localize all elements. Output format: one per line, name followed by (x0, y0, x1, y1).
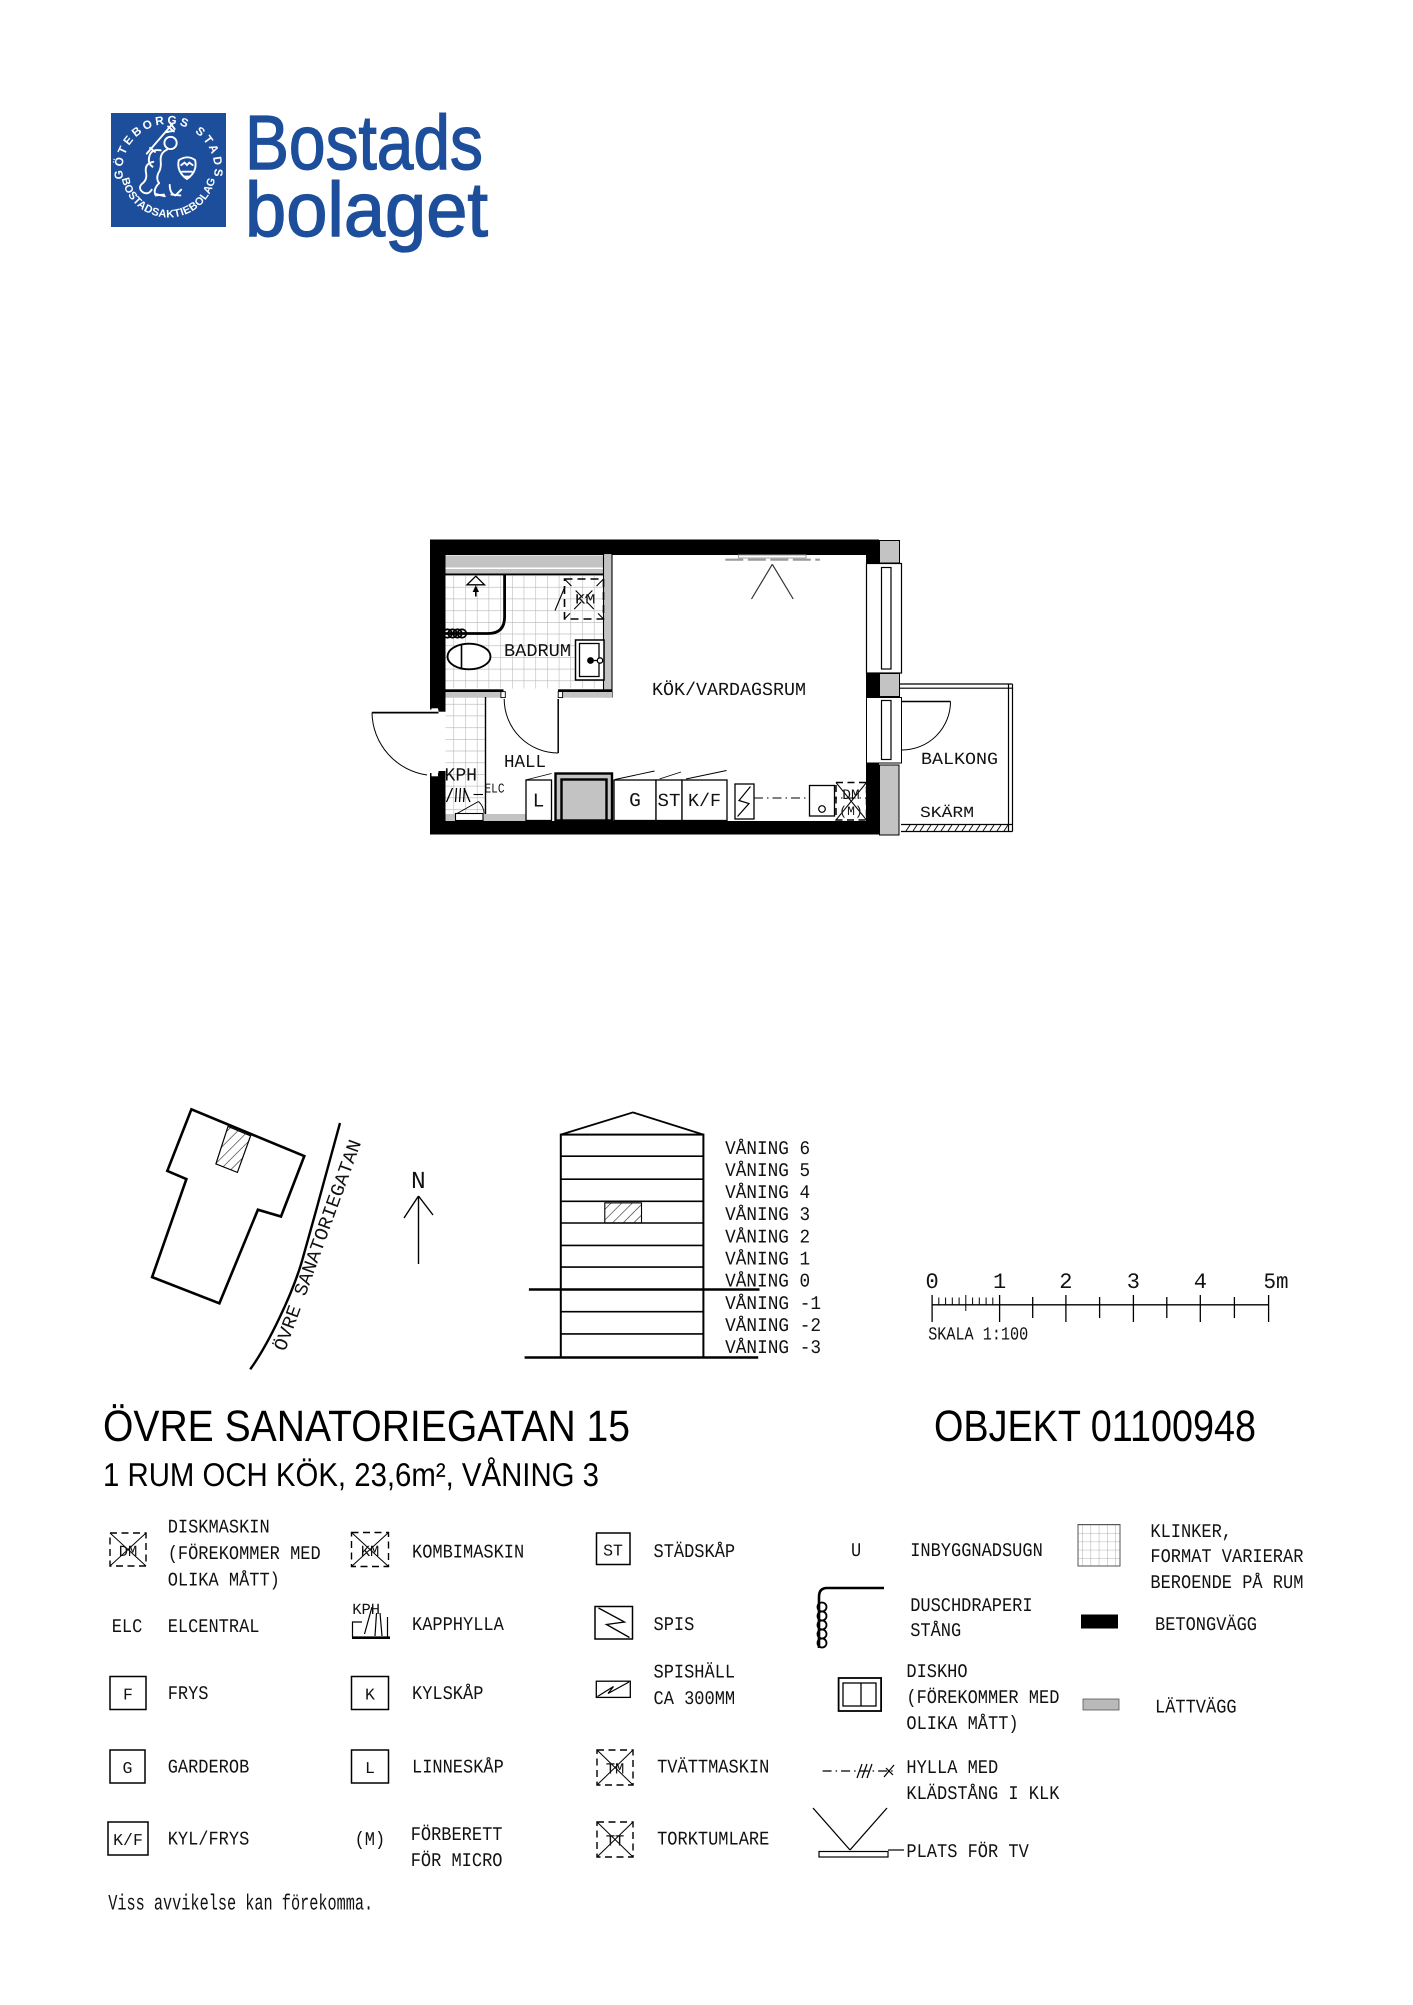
svg-text:SKALA 1:100: SKALA 1:100 (928, 1325, 1028, 1346)
svg-text:ELC: ELC (112, 1616, 143, 1638)
svg-text:3: 3 (1127, 1270, 1140, 1295)
svg-text:STÅNG: STÅNG (910, 1620, 961, 1642)
svg-text:U: U (851, 1540, 861, 1562)
svg-text:BALKONG: BALKONG (921, 751, 998, 770)
svg-text:K/F: K/F (688, 791, 721, 812)
svg-text:G: G (629, 790, 641, 812)
svg-text:LÄTTVÄGG: LÄTTVÄGG (1155, 1697, 1237, 1719)
svg-text:VÅNING 6: VÅNING 6 (725, 1138, 810, 1160)
svg-text:SKÄRM: SKÄRM (920, 804, 974, 822)
svg-text:VÅNING -1: VÅNING -1 (725, 1293, 821, 1315)
svg-text:VÅNING 3: VÅNING 3 (725, 1204, 810, 1226)
svg-text:OLIKA MÅTT): OLIKA MÅTT) (906, 1713, 1018, 1735)
svg-text:VÅNING 0: VÅNING 0 (725, 1271, 810, 1293)
svg-text:FÖR MICRO: FÖR MICRO (411, 1850, 503, 1872)
svg-text:VÅNING 1: VÅNING 1 (725, 1249, 810, 1271)
svg-text:FRYS: FRYS (168, 1683, 209, 1705)
svg-text:(M): (M) (839, 804, 862, 819)
svg-text:PLATS FÖR TV: PLATS FÖR TV (906, 1841, 1029, 1863)
svg-text:K/F: K/F (113, 1831, 143, 1850)
svg-text:TT: TT (606, 1833, 625, 1851)
svg-text:SPIS: SPIS (654, 1614, 695, 1636)
svg-text:BETONGVÄGG: BETONGVÄGG (1155, 1614, 1257, 1636)
svg-text:DM: DM (119, 1543, 138, 1561)
svg-text:TM: TM (606, 1761, 625, 1779)
svg-text:L: L (533, 791, 545, 813)
svg-text:KAPPHYLLA: KAPPHYLLA (412, 1614, 504, 1636)
svg-text:ÖVRE SANATORIEGATAN 15: ÖVRE SANATORIEGATAN 15 (103, 1402, 630, 1451)
svg-text:BADRUM: BADRUM (504, 642, 571, 662)
svg-text:KLINKER,: KLINKER, (1150, 1521, 1232, 1543)
svg-text:FORMAT VARIERAR: FORMAT VARIERAR (1150, 1546, 1303, 1568)
svg-text:ST: ST (658, 791, 681, 812)
svg-text:KYL/FRYS: KYL/FRYS (168, 1829, 250, 1851)
svg-text:HYLLA MED: HYLLA MED (906, 1757, 998, 1779)
svg-text:DISKMASKIN: DISKMASKIN (168, 1517, 270, 1539)
svg-text:1: 1 (993, 1270, 1006, 1295)
svg-text:(FÖREKOMMER MED: (FÖREKOMMER MED (168, 1543, 321, 1565)
svg-text:VÅNING 2: VÅNING 2 (725, 1227, 810, 1249)
svg-text:(M): (M) (355, 1829, 386, 1851)
svg-text:LINNESKÅP: LINNESKÅP (412, 1757, 504, 1779)
svg-text:OLIKA MÅTT): OLIKA MÅTT) (168, 1570, 280, 1592)
svg-text:HALL: HALL (504, 753, 546, 773)
svg-text:G: G (123, 1759, 133, 1778)
svg-text:OBJEKT 01100948: OBJEKT 01100948 (934, 1402, 1256, 1451)
svg-text:KM: KM (575, 593, 596, 609)
svg-text:ELC: ELC (485, 783, 505, 798)
svg-text:(FÖREKOMMER MED: (FÖREKOMMER MED (906, 1687, 1059, 1709)
svg-text:ST: ST (603, 1542, 623, 1561)
svg-text:SPISHÄLL: SPISHÄLL (654, 1662, 736, 1684)
svg-text:DISKHO: DISKHO (906, 1661, 967, 1683)
svg-text:Viss avvikelse kan förekomma.: Viss avvikelse kan förekomma. (108, 1892, 373, 1917)
svg-text:4: 4 (1194, 1270, 1207, 1295)
svg-text:1 RUM OCH KÖK, 23,6m², VÅNING: 1 RUM OCH KÖK, 23,6m², VÅNING 3 (103, 1456, 599, 1493)
svg-text:KLÄDSTÅNG I KLK: KLÄDSTÅNG I KLK (906, 1783, 1059, 1805)
svg-text:ELCENTRAL: ELCENTRAL (168, 1616, 260, 1638)
svg-text:FÖRBERETT: FÖRBERETT (411, 1824, 503, 1846)
svg-text:TORKTUMLARE: TORKTUMLARE (657, 1829, 769, 1851)
svg-text:TVÄTTMASKIN: TVÄTTMASKIN (657, 1757, 769, 1779)
svg-text:KPH: KPH (445, 765, 478, 787)
svg-text:L: L (365, 1759, 375, 1778)
svg-text:STÄDSKÅP: STÄDSKÅP (654, 1541, 736, 1563)
svg-text:KYLSKÅP: KYLSKÅP (412, 1683, 483, 1705)
svg-text:KM: KM (361, 1543, 380, 1561)
svg-text:VÅNING -2: VÅNING -2 (725, 1315, 821, 1337)
svg-text:VÅNING 5: VÅNING 5 (725, 1160, 810, 1182)
svg-text:GARDEROB: GARDEROB (168, 1757, 250, 1779)
svg-text:BEROENDE PÅ RUM: BEROENDE PÅ RUM (1150, 1572, 1303, 1594)
svg-text:DM: DM (842, 788, 859, 804)
svg-text:DUSCHDRAPERI: DUSCHDRAPERI (910, 1595, 1032, 1617)
svg-text:bolaget: bolaget (245, 167, 488, 253)
svg-text:0: 0 (925, 1270, 938, 1295)
svg-text:KOMBIMASKIN: KOMBIMASKIN (412, 1542, 524, 1564)
svg-text:KÖK/VARDAGSRUM: KÖK/VARDAGSRUM (652, 680, 806, 701)
svg-text:5m: 5m (1264, 1270, 1289, 1295)
svg-text:VÅNING 4: VÅNING 4 (725, 1182, 810, 1204)
svg-text:INBYGGNADSUGN: INBYGGNADSUGN (910, 1540, 1043, 1562)
svg-text:F: F (123, 1686, 133, 1705)
svg-text:CA 300MM: CA 300MM (654, 1688, 736, 1710)
svg-text:N: N (411, 1169, 426, 1196)
svg-text:2: 2 (1059, 1270, 1072, 1295)
svg-text:K: K (365, 1686, 375, 1705)
svg-text:VÅNING -3: VÅNING -3 (725, 1337, 821, 1359)
